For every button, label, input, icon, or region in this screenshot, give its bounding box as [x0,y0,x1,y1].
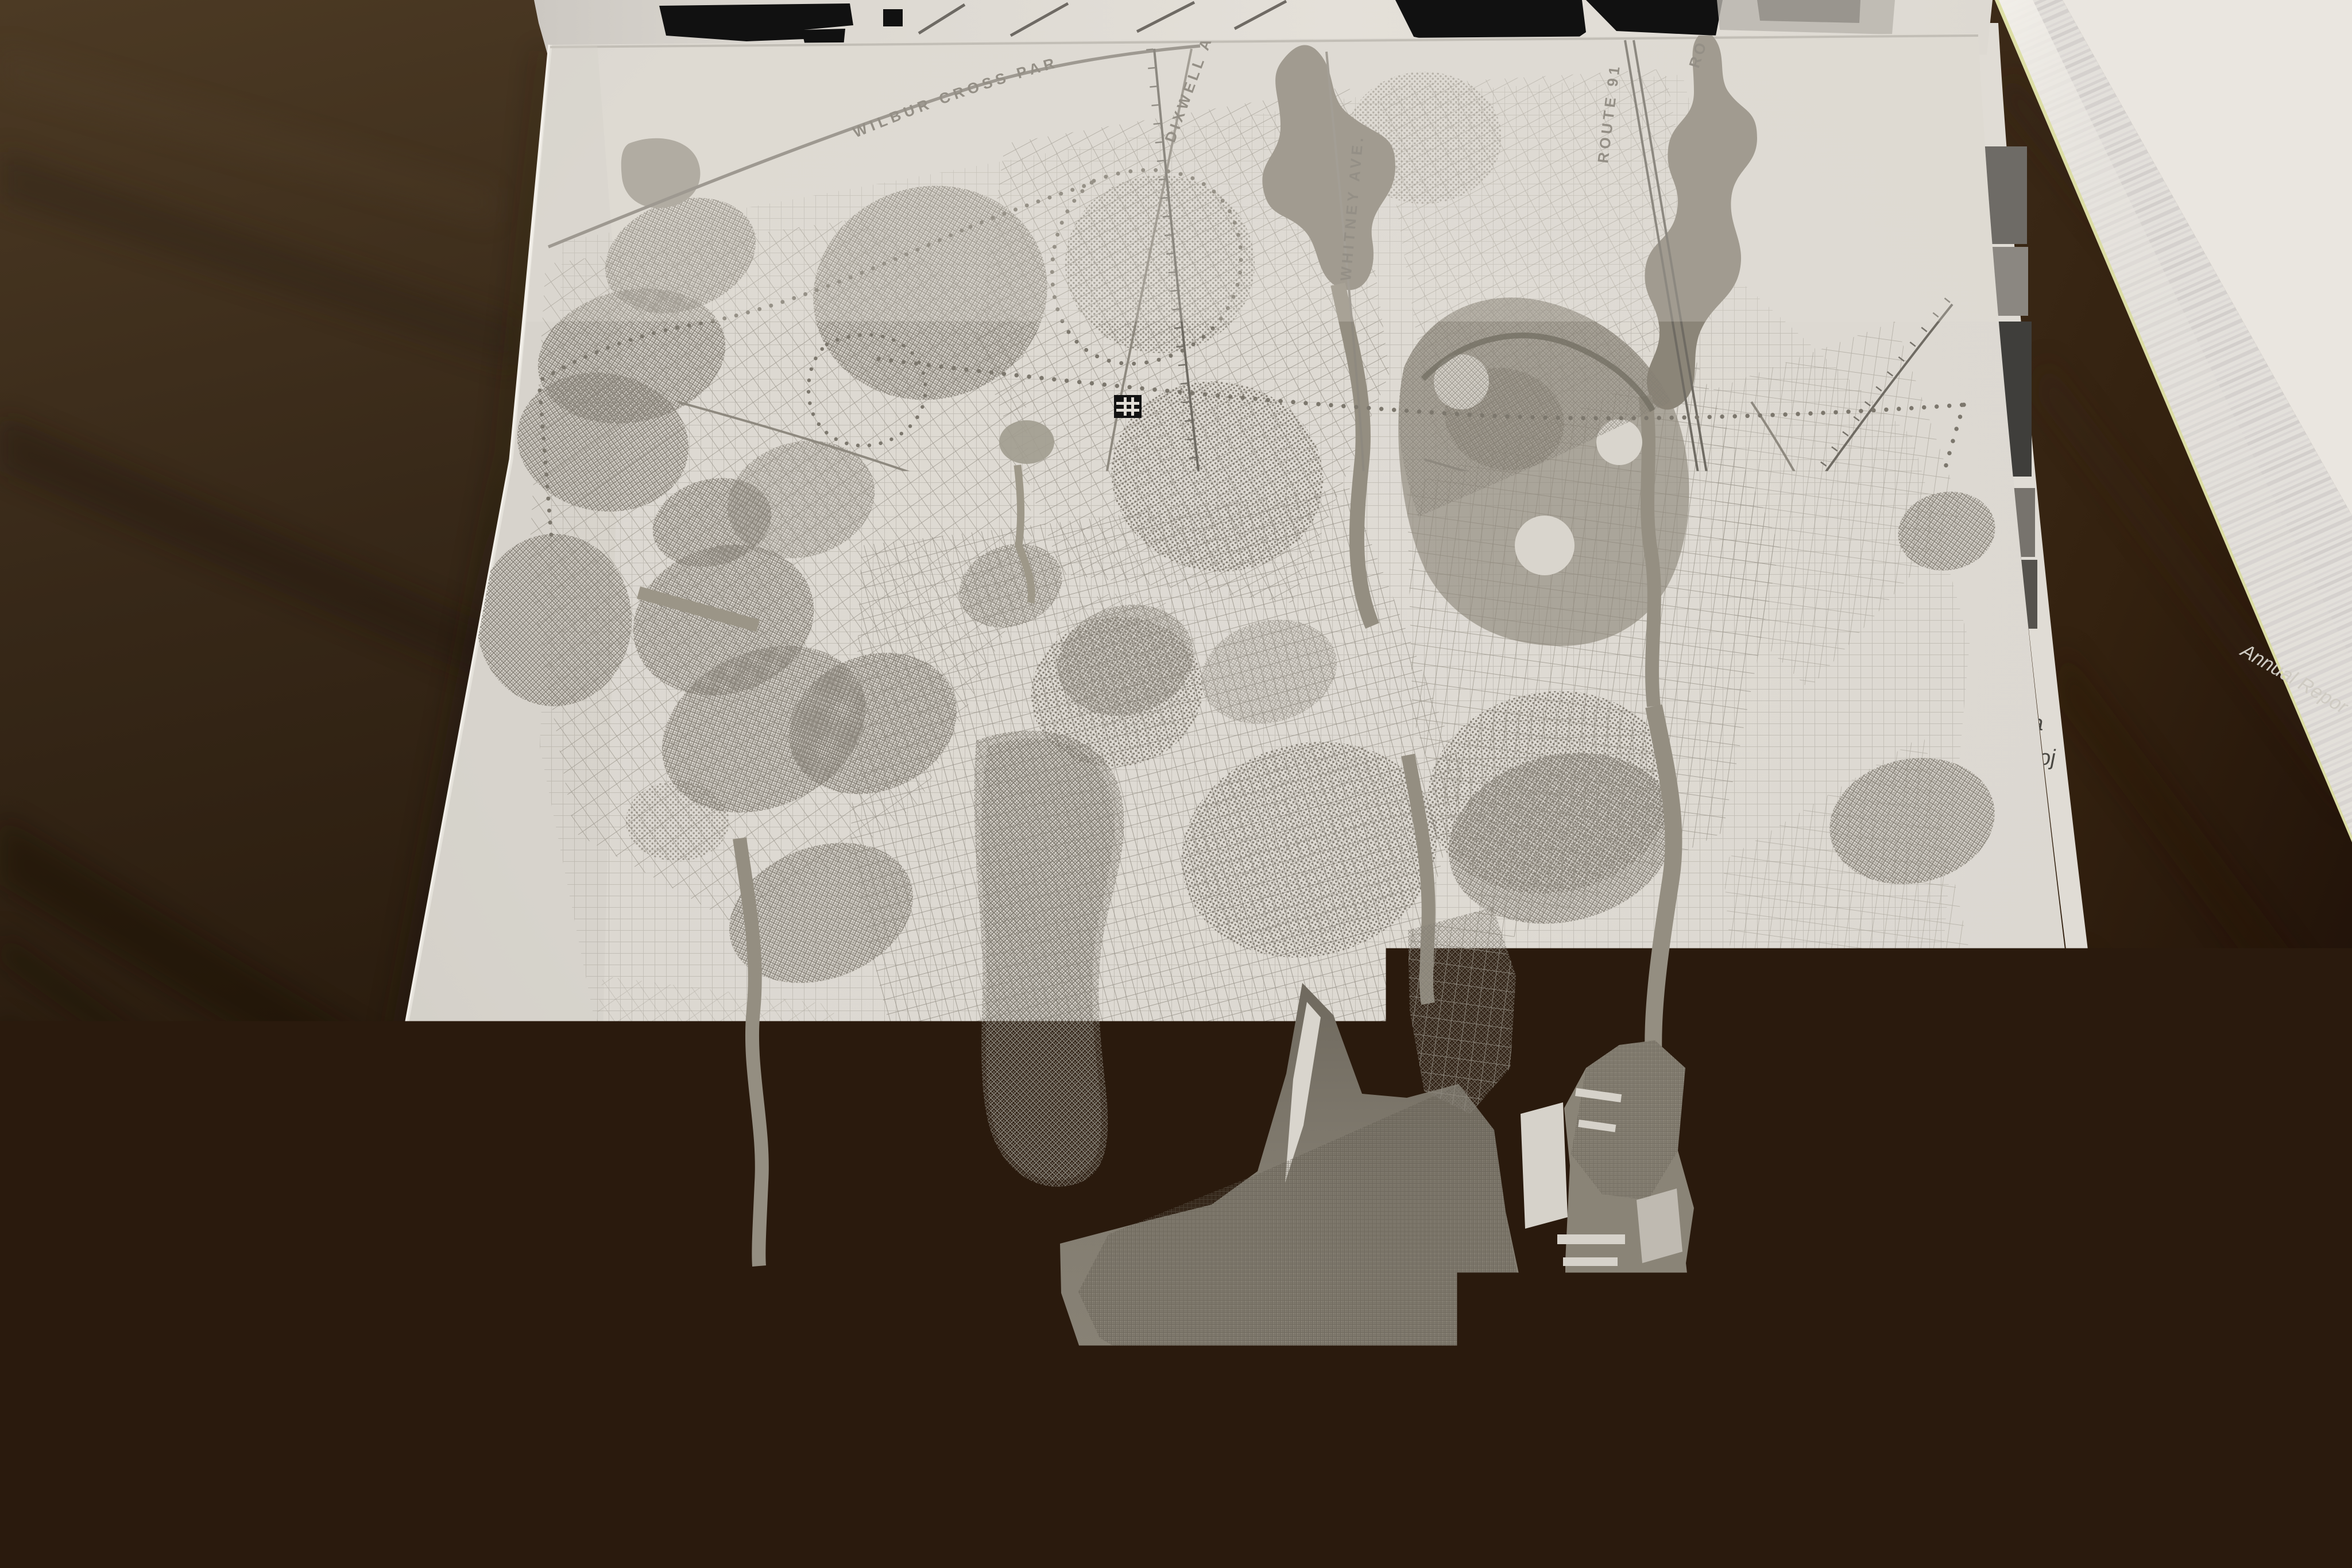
svg-text:MIDDLE GROUND: MIDDLE GROUND [1796,1391,1954,1419]
svg-text:AREAS: AREAS [1796,1262,1862,1290]
svg-text:AREAS: AREAS [1796,1340,1862,1368]
svg-text:RENEWAL: RENEWAL [1796,1237,1887,1265]
svg-text:UNDERWAY & PLANNED: UNDERWAY & PLANNED [1796,1496,2010,1524]
svg-text:AREAS: AREAS [1796,1420,1862,1449]
svg-text:REHABILITATED HOUSING: REHABILITATED HOUSING [1796,1467,2021,1495]
svg-text:NEW HOUSING: NEW HOUSING [1799,1543,1930,1568]
